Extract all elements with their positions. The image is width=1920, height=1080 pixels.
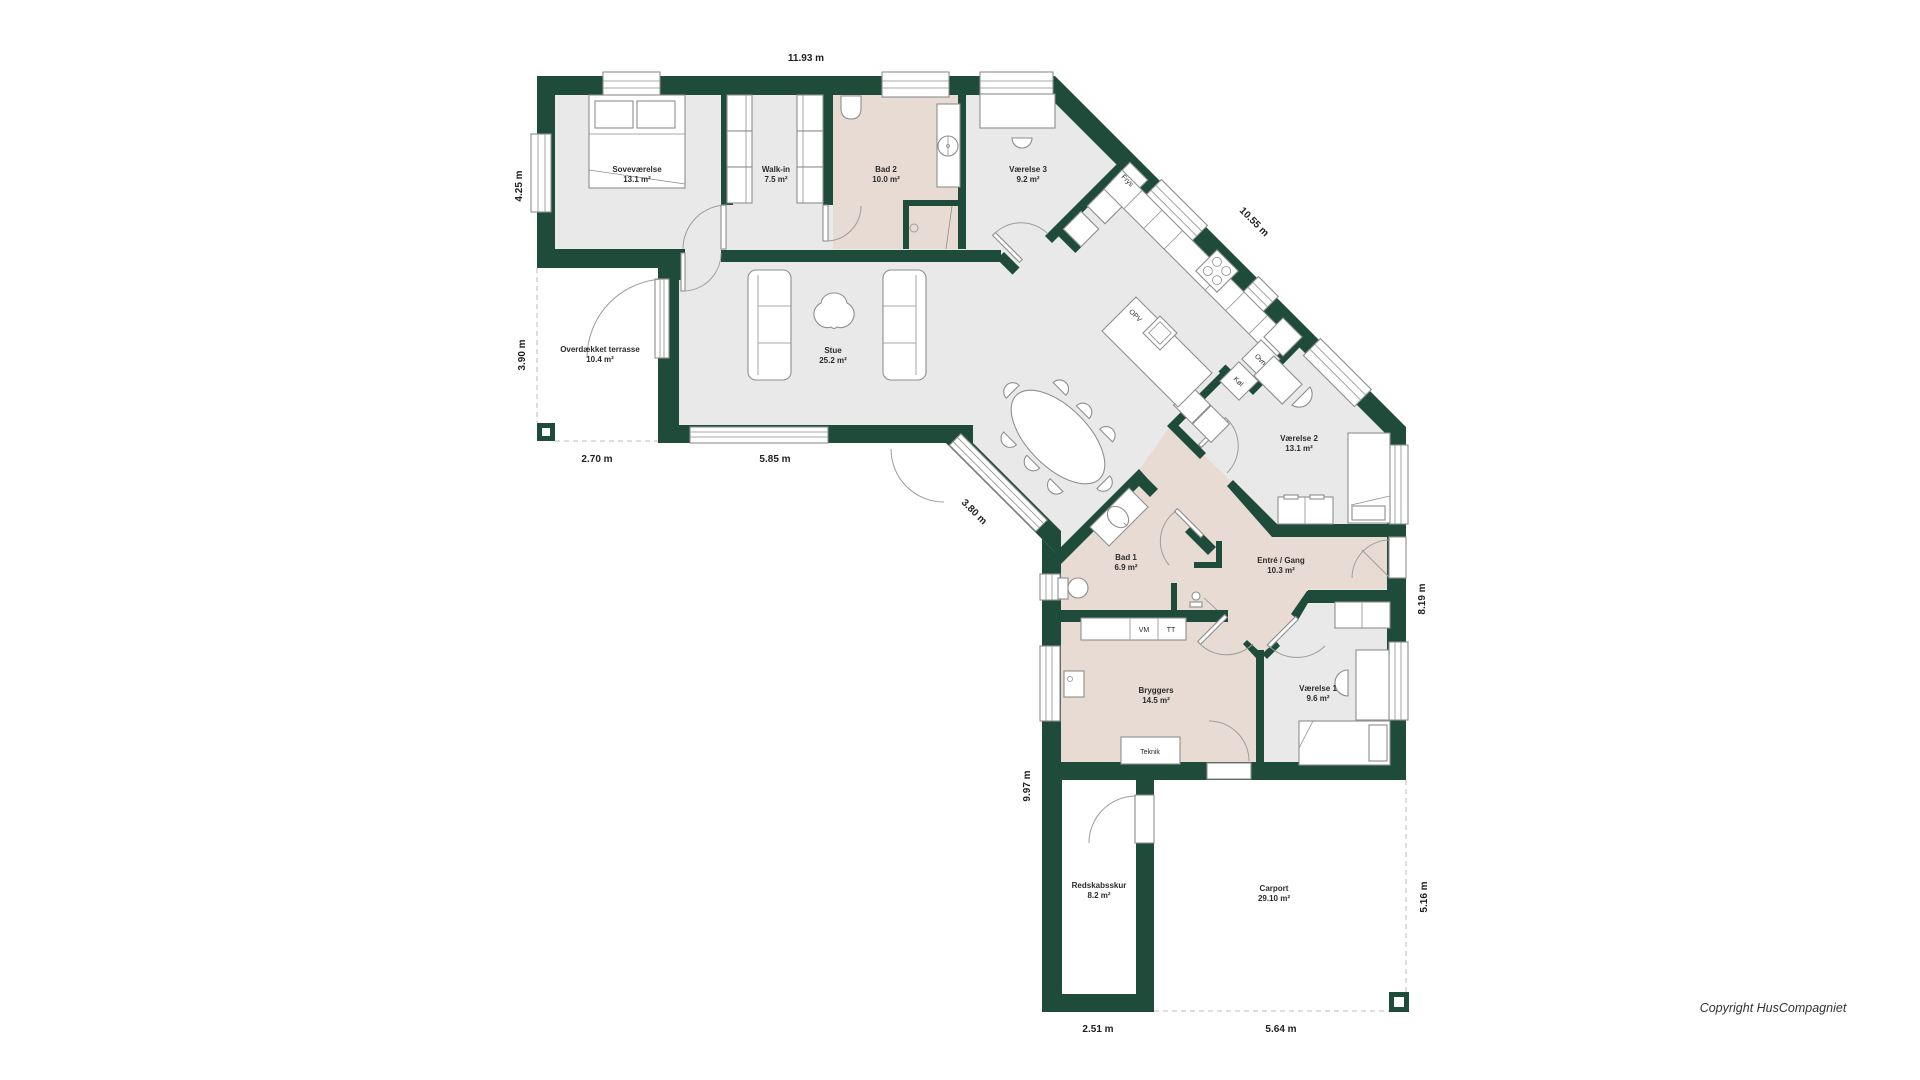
svg-text:Redskabsskur: Redskabsskur xyxy=(1072,881,1127,890)
svg-text:9.97 m: 9.97 m xyxy=(1022,770,1033,801)
svg-text:Walk-in: Walk-in xyxy=(762,165,790,174)
svg-text:Bad 2: Bad 2 xyxy=(875,165,897,174)
svg-text:8.19 m: 8.19 m xyxy=(1417,583,1428,614)
svg-text:4.25 m: 4.25 m xyxy=(514,170,525,201)
svg-text:14.5 m²: 14.5 m² xyxy=(1142,696,1170,705)
svg-text:VM: VM xyxy=(1139,627,1150,634)
svg-text:Værelse 2: Værelse 2 xyxy=(1280,434,1318,443)
svg-text:2.51 m: 2.51 m xyxy=(1082,1024,1113,1035)
svg-text:6.9 m²: 6.9 m² xyxy=(1114,563,1137,572)
svg-text:7.5 m²: 7.5 m² xyxy=(764,175,787,184)
svg-text:Teknik: Teknik xyxy=(1140,749,1160,756)
svg-text:Copyright HusCompagniet: Copyright HusCompagniet xyxy=(1700,1001,1847,1015)
svg-text:9.2 m²: 9.2 m² xyxy=(1016,175,1039,184)
svg-text:5.85 m: 5.85 m xyxy=(759,454,790,465)
svg-text:5.64 m: 5.64 m xyxy=(1265,1024,1296,1035)
svg-text:Entré / Gang: Entré / Gang xyxy=(1257,556,1305,565)
svg-text:Soveværelse: Soveværelse xyxy=(612,165,662,174)
svg-text:Carport: Carport xyxy=(1260,884,1289,893)
svg-text:29.10 m²: 29.10 m² xyxy=(1258,894,1290,903)
svg-text:Værelse 3: Værelse 3 xyxy=(1009,165,1047,174)
svg-text:10.3 m²: 10.3 m² xyxy=(1267,566,1295,575)
svg-text:Bad 1: Bad 1 xyxy=(1115,553,1137,562)
svg-text:13.1 m²: 13.1 m² xyxy=(623,175,651,184)
svg-text:Bryggers: Bryggers xyxy=(1138,686,1174,695)
svg-text:13.1 m²: 13.1 m² xyxy=(1285,444,1313,453)
svg-text:10.0 m²: 10.0 m² xyxy=(872,175,900,184)
svg-text:11.93 m: 11.93 m xyxy=(788,53,824,64)
svg-text:TT: TT xyxy=(1167,627,1176,634)
svg-text:3.90 m: 3.90 m xyxy=(517,339,528,370)
svg-text:Værelse 1: Værelse 1 xyxy=(1299,684,1337,693)
svg-text:Overdækket terrasse: Overdækket terrasse xyxy=(560,345,640,354)
svg-text:5.16 m: 5.16 m xyxy=(1419,881,1430,912)
svg-text:Stue: Stue xyxy=(824,346,842,355)
svg-text:25.2 m²: 25.2 m² xyxy=(819,356,847,365)
svg-text:2.70 m: 2.70 m xyxy=(581,454,612,465)
svg-text:10.4 m²: 10.4 m² xyxy=(586,355,614,364)
svg-text:8.2 m²: 8.2 m² xyxy=(1087,891,1110,900)
svg-text:9.6 m²: 9.6 m² xyxy=(1306,694,1329,703)
